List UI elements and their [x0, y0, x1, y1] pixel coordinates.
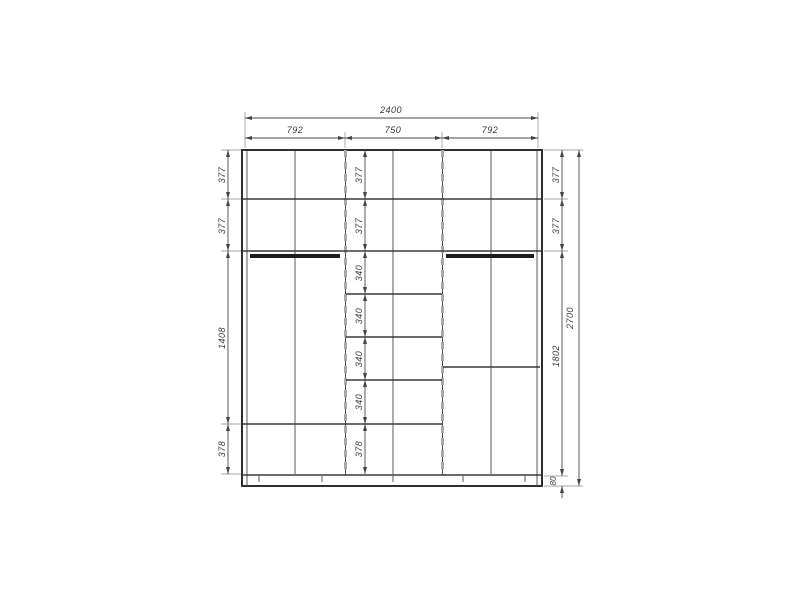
dim-label-left-3: 1408: [217, 327, 227, 349]
cabinet-structure: [242, 150, 542, 486]
technical-drawing-page: 2400 792 750 792 377 377 1408 378 377 37…: [0, 0, 800, 600]
dim-label-center-2: 377: [354, 217, 364, 234]
dim-label-right-3: 1802: [551, 345, 561, 367]
dim-label-right-1: 377: [551, 166, 561, 183]
dim-label-section-1: 792: [287, 125, 304, 135]
dimensions-left: 377 377 1408 378: [217, 150, 241, 474]
cabinet-outline: [242, 150, 542, 486]
wardrobe-dimension-drawing: 2400 792 750 792 377 377 1408 378 377 37…: [0, 0, 800, 600]
dim-label-section-3: 792: [482, 125, 499, 135]
dim-label-center-6: 340: [354, 394, 364, 411]
dim-label-left-4: 378: [217, 441, 227, 458]
dim-label-center-5: 340: [354, 351, 364, 368]
dim-label-left-1: 377: [217, 166, 227, 183]
dim-label-overall-width: 2400: [379, 105, 402, 115]
dim-label-center-3: 340: [354, 265, 364, 282]
dim-label-section-2: 750: [385, 125, 402, 135]
dim-label-overall-height: 2700: [565, 307, 575, 330]
dim-label-center-1: 377: [354, 166, 364, 183]
dim-label-center-4: 340: [354, 308, 364, 325]
dimensions-right: 377 377 1802 80 2700: [544, 150, 583, 498]
dim-label-left-2: 377: [217, 217, 227, 234]
dim-label-center-7: 378: [354, 441, 364, 458]
dimensions-top: 2400 792 750 792: [245, 105, 538, 148]
dim-label-right-4: 80: [549, 476, 558, 485]
dim-label-right-2: 377: [551, 217, 561, 234]
